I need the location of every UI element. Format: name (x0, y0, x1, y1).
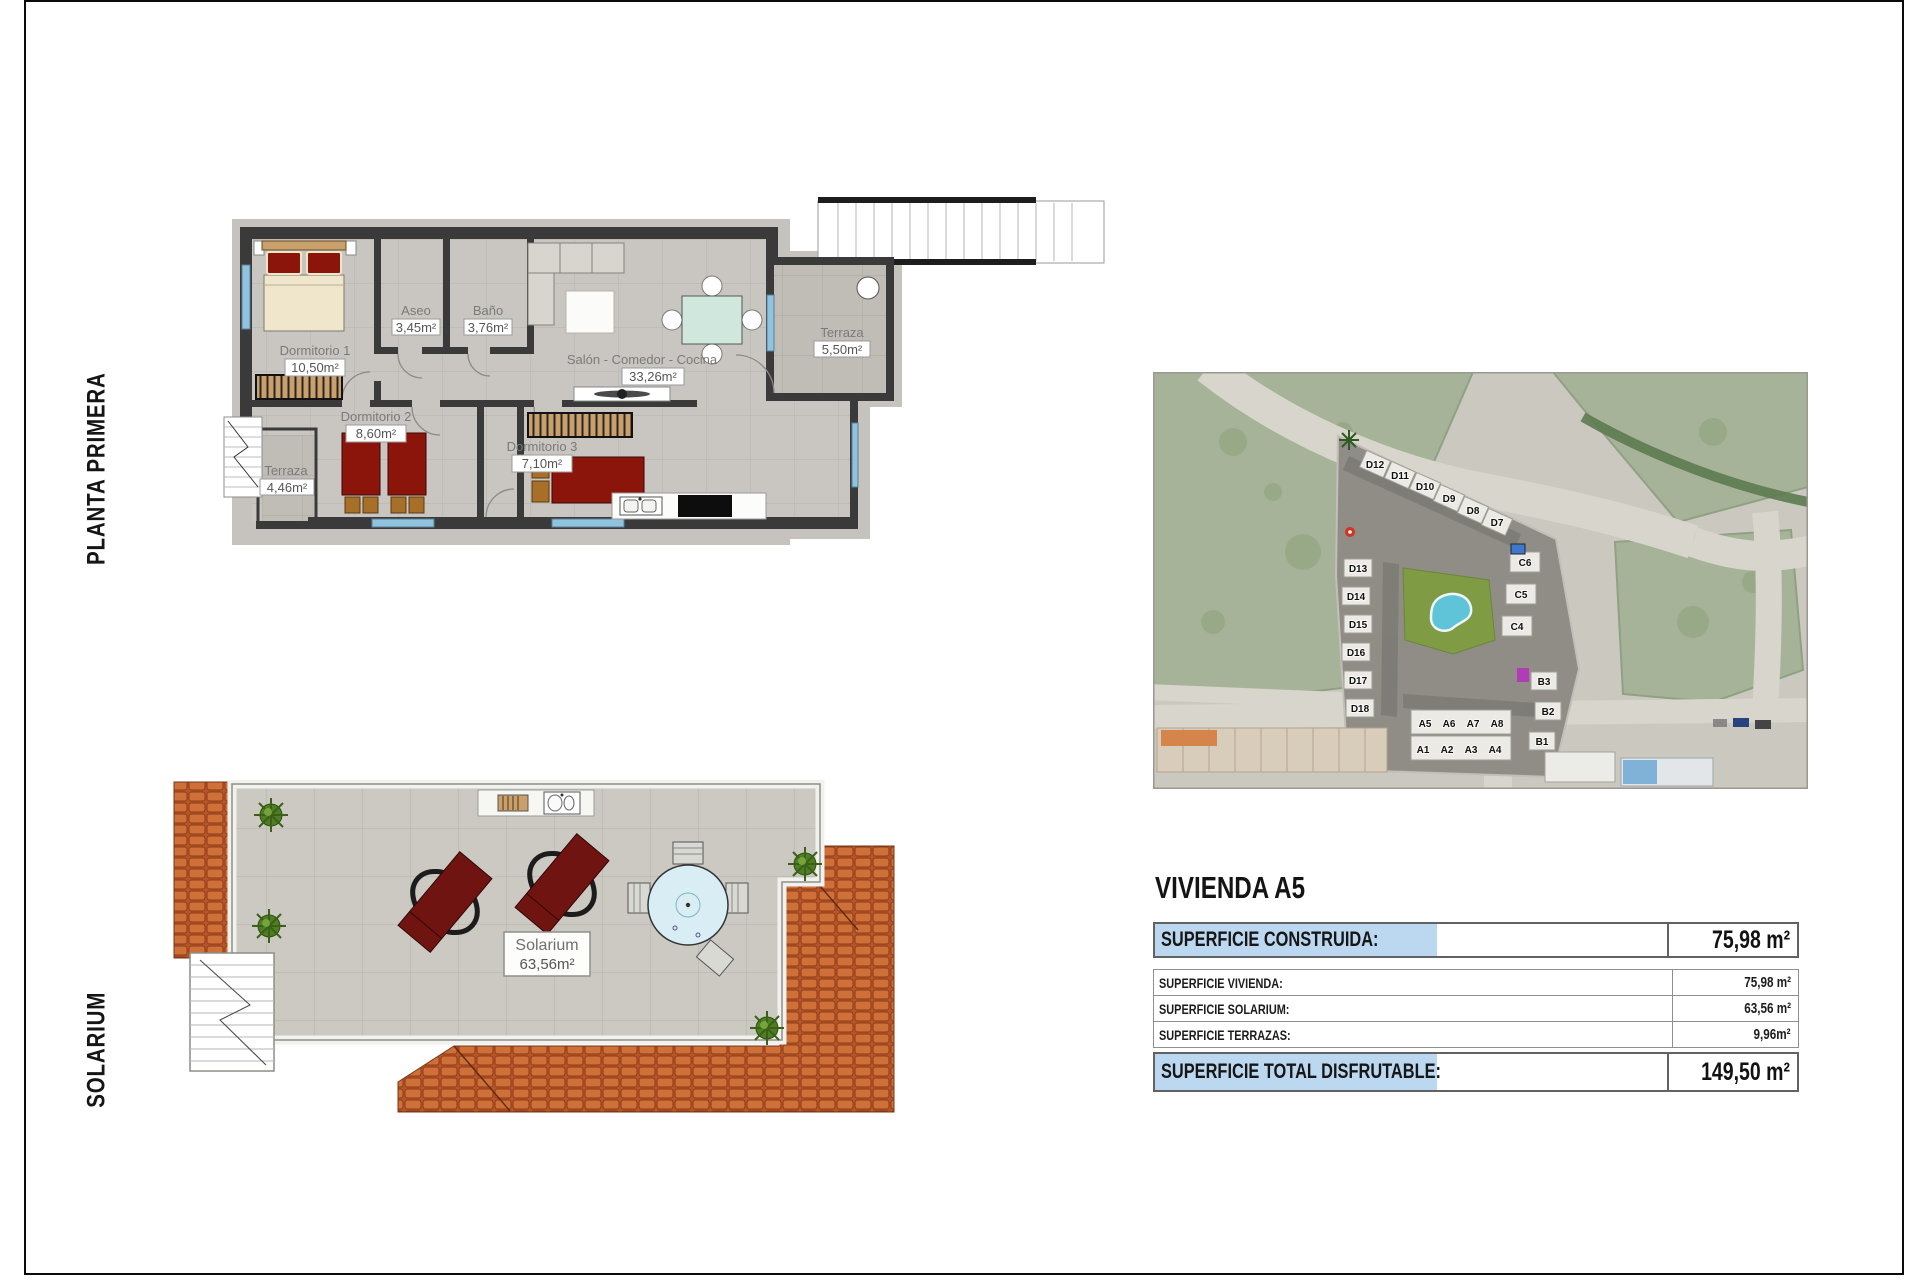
aerial-site-view: D12 D11 D10 D9 D8 D7 D13 D14 D15 D16 D17… (1153, 372, 1808, 789)
tv-console (574, 387, 670, 401)
solarium-label: Solarium 63,56m² (504, 932, 590, 976)
terrace-table (857, 277, 879, 299)
room-area-dorm1: 10,50m² (291, 360, 339, 375)
total-value-cell: 149,50 m² (1667, 1054, 1797, 1090)
car (1755, 720, 1771, 729)
magenta-marker (1517, 668, 1529, 682)
room-label-dorm1: Dormitorio 1 (280, 343, 351, 358)
room-area-dorm3: 7,10m² (522, 456, 563, 471)
room-area-aseo: 3,45m² (396, 320, 437, 335)
room-area-salon: 33,26m² (629, 369, 677, 384)
svg-text:D9: D9 (1443, 494, 1456, 505)
room-area-dorm2: 8,60m² (356, 426, 397, 441)
dorm1-wardrobe (256, 375, 342, 399)
room-label-dorm3: Dormitorio 3 (507, 439, 578, 454)
svg-text:A1: A1 (1417, 745, 1430, 756)
solarium-stairs (190, 953, 274, 1071)
summary-row-vivienda: SUPERFICIE VIVIENDA: 75,98 m² (1153, 969, 1799, 996)
svg-text:D13: D13 (1349, 564, 1368, 575)
summary-row-construida: SUPERFICIE CONSTRUIDA: 75,98 m² (1153, 922, 1799, 958)
kitchen-counter (612, 493, 766, 519)
car (1733, 718, 1749, 727)
construida-spacer-cell (1437, 924, 1667, 956)
room-label-bano: Baño (473, 303, 503, 318)
room-label-salon: Salón - Comedor - Cocina (567, 352, 718, 367)
svg-text:D15: D15 (1349, 620, 1368, 631)
construida-value-cell: 75,98 m² (1667, 924, 1797, 956)
svg-text:D8: D8 (1467, 506, 1480, 517)
svg-text:A7: A7 (1467, 719, 1480, 730)
svg-text:C5: C5 (1515, 590, 1528, 601)
room-label-aseo: Aseo (401, 303, 431, 318)
svg-text:D14: D14 (1347, 592, 1366, 603)
planta-primera-label: PLANTA PRIMERA (83, 396, 112, 565)
svg-text:B2: B2 (1542, 707, 1555, 718)
svg-text:A5: A5 (1419, 719, 1432, 730)
exterior-stairs-top (818, 197, 1104, 265)
private-pool-marker (1511, 544, 1525, 554)
room-area-bano: 3,76m² (468, 320, 509, 335)
svg-text:D17: D17 (1349, 676, 1368, 687)
roof-left (174, 782, 232, 958)
room-label-dorm2: Dormitorio 2 (341, 409, 412, 424)
svg-text:D11: D11 (1391, 471, 1409, 482)
svg-text:A2: A2 (1441, 745, 1454, 756)
room-area-terraza-left: 4,46m² (267, 480, 308, 495)
summary-row-solarium: SUPERFICIE SOLARIUM: 63,56 m² (1153, 995, 1799, 1022)
svg-text:C4: C4 (1511, 622, 1524, 633)
summary-row-total: SUPERFICIE TOTAL DISFRUTABLE: 149,50 m² (1153, 1052, 1799, 1092)
svg-text:D18: D18 (1351, 704, 1370, 715)
floor-plan: Dormitorio 1 10,50m² Aseo 3,45m² Baño 3,… (222, 195, 1112, 545)
svg-text:B3: B3 (1538, 677, 1551, 688)
room-label-terraza-right: Terraza (820, 325, 864, 340)
svg-text:B1: B1 (1536, 737, 1549, 748)
solarium-plan: Solarium 63,56m² (170, 780, 910, 1130)
summary-detail-rows: SUPERFICIE VIVIENDA: 75,98 m² SUPERFICIE… (1153, 970, 1799, 1048)
solarium-section-label: SOLARIUM (83, 1009, 112, 1107)
svg-text:Solarium: Solarium (515, 937, 578, 954)
interior-stairs (224, 417, 262, 497)
summary-title: VIVIENDA A5 (1155, 870, 1347, 906)
total-label-cell: SUPERFICIE TOTAL DISFRUTABLE: (1155, 1054, 1437, 1090)
svg-text:A3: A3 (1465, 745, 1478, 756)
brochure-page: PLANTA PRIMERA SOLARIUM (0, 0, 1920, 1280)
svg-text:D12: D12 (1366, 460, 1385, 471)
total-spacer-cell (1437, 1054, 1667, 1090)
palm-tree (1339, 430, 1359, 450)
svg-text:D16: D16 (1347, 648, 1366, 659)
svg-text:A4: A4 (1489, 745, 1502, 756)
svg-text:C6: C6 (1519, 558, 1532, 569)
construida-label-cell: SUPERFICIE CONSTRUIDA: (1155, 924, 1437, 956)
svg-text:63,56m²: 63,56m² (519, 956, 574, 973)
solarium-kitchenette (478, 790, 594, 816)
svg-text:A6: A6 (1443, 719, 1456, 730)
summary-row-terrazas: SUPERFICIE TERRAZAS: 9,96m² (1153, 1021, 1799, 1048)
room-area-terraza-right: 5,50m² (822, 342, 863, 357)
svg-text:D7: D7 (1491, 518, 1504, 529)
svg-text:D10: D10 (1416, 482, 1435, 493)
car (1713, 719, 1727, 727)
room-label-terraza-left: Terraza (264, 463, 308, 478)
svg-text:A8: A8 (1491, 719, 1504, 730)
